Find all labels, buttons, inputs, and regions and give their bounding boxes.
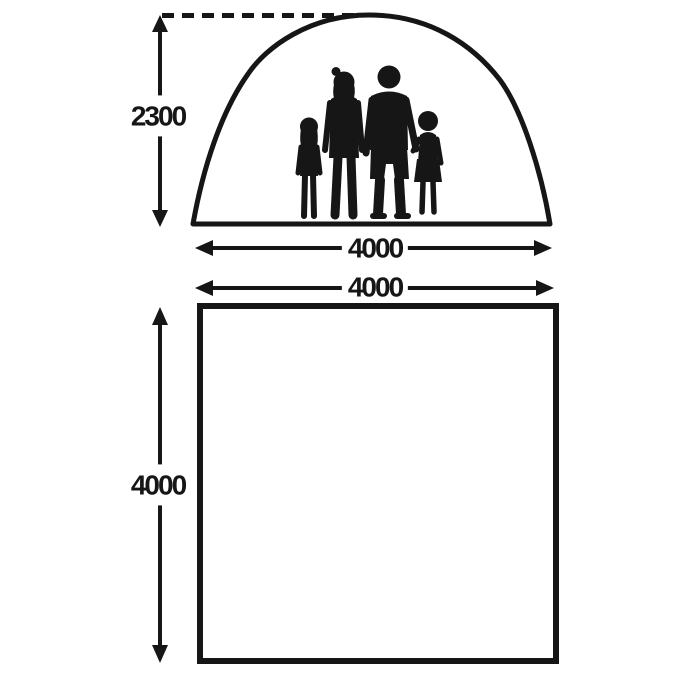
tent-spec-diagram: 2300 4000 4000 4000 <box>0 0 700 700</box>
floorplan-width-dimension-label: 4000 <box>342 272 408 301</box>
arrow-up-icon <box>152 307 168 325</box>
tent-height-dimension-label: 2300 <box>125 95 191 136</box>
arrow-left-icon <box>195 240 213 256</box>
arrow-down-icon <box>152 210 168 227</box>
diagram-drawing <box>0 0 700 700</box>
arrow-right-icon <box>536 280 554 296</box>
arrow-left-icon <box>195 280 213 296</box>
floorplan-depth-dimension-label: 4000 <box>125 464 191 505</box>
arrow-right-icon <box>534 240 552 256</box>
floorplan-outline <box>200 306 556 661</box>
tent-width-dimension-label: 4000 <box>342 233 408 262</box>
arrow-down-icon <box>152 645 168 663</box>
